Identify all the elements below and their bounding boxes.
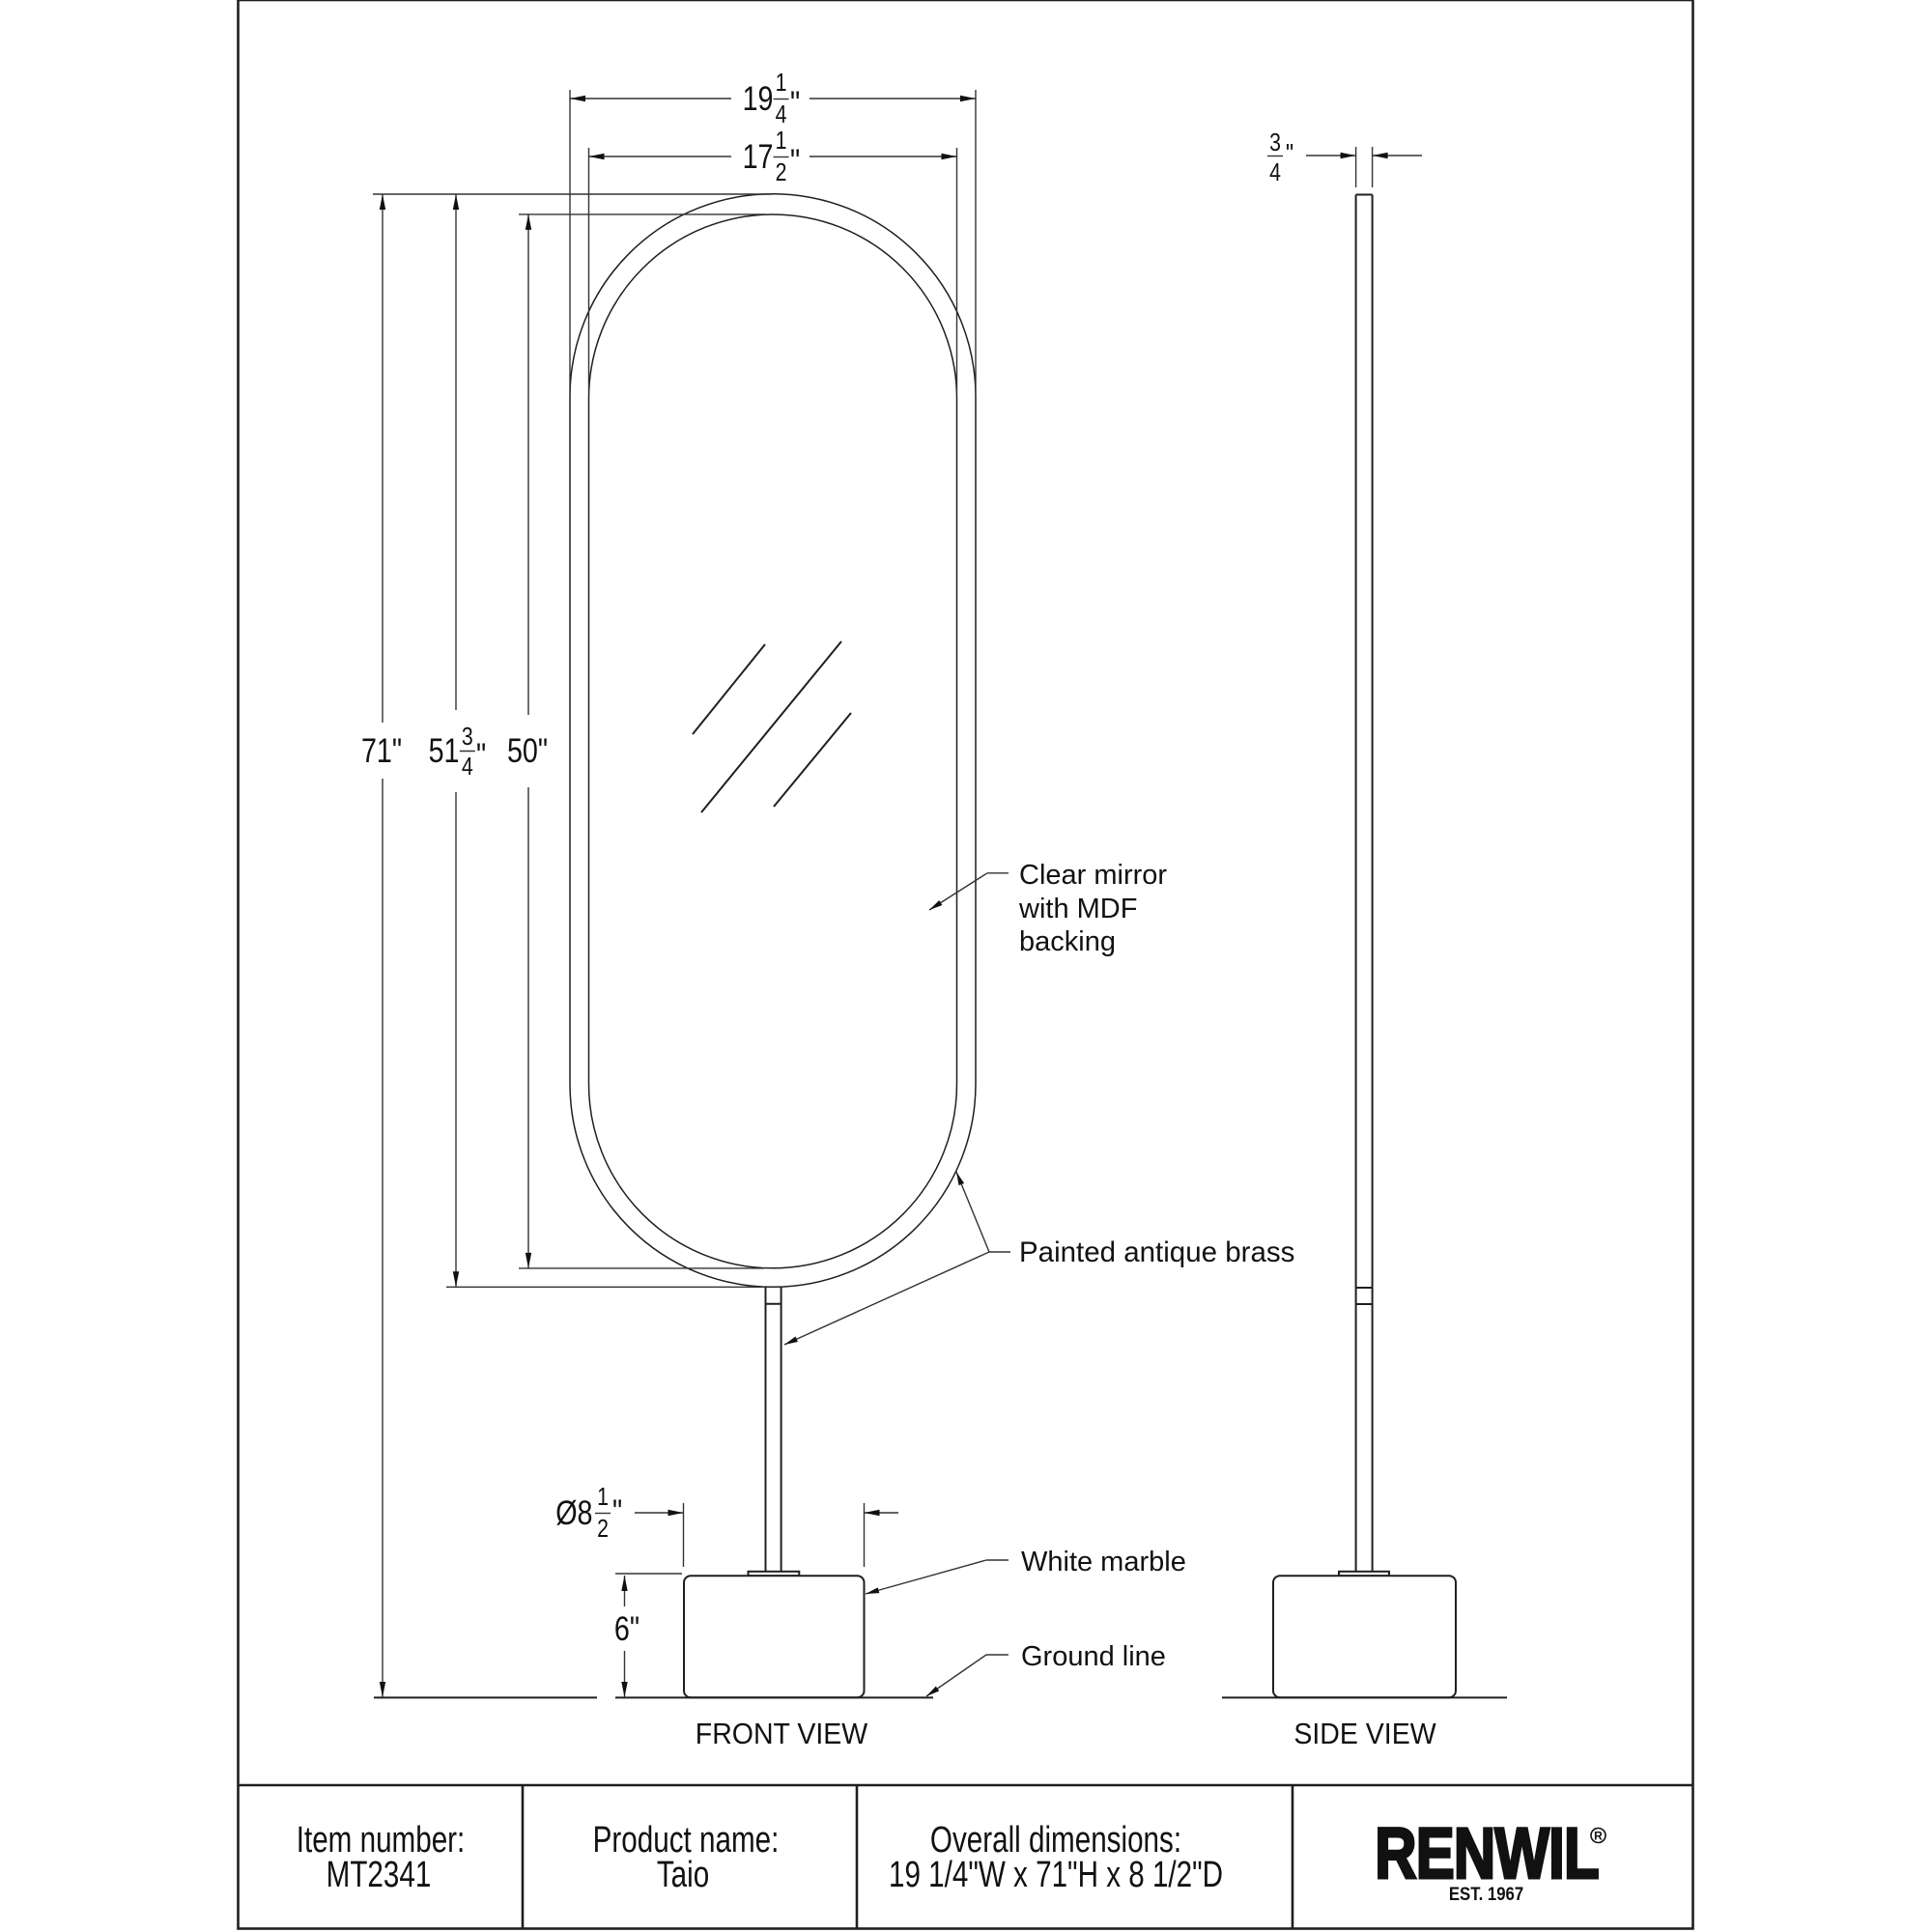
svg-text:4: 4: [462, 753, 473, 781]
svg-text:": ": [790, 142, 800, 180]
svg-text:FRONT VIEW: FRONT VIEW: [696, 1718, 867, 1750]
svg-text:": ": [612, 1492, 622, 1530]
svg-text:": ": [476, 736, 486, 774]
svg-text:Taio: Taio: [657, 1855, 709, 1895]
svg-text:Clear mirror: Clear mirror: [1019, 860, 1167, 891]
svg-text:1: 1: [776, 127, 787, 156]
svg-text:EST. 1967: EST. 1967: [1449, 1884, 1523, 1904]
svg-text:Painted antique brass: Painted antique brass: [1019, 1236, 1294, 1268]
svg-text:R: R: [1594, 1830, 1603, 1843]
svg-text:": ": [790, 84, 800, 122]
svg-text:71": 71": [361, 731, 402, 769]
svg-text:4: 4: [776, 100, 787, 129]
svg-text:Ø8: Ø8: [555, 1493, 592, 1531]
svg-text:RENWIL: RENWIL: [1375, 1814, 1599, 1893]
svg-text:19: 19: [743, 79, 774, 117]
svg-text:Ground line: Ground line: [1021, 1641, 1166, 1672]
svg-text:MT2341: MT2341: [327, 1855, 432, 1895]
svg-text:": ": [1286, 139, 1293, 169]
svg-text:SIDE VIEW: SIDE VIEW: [1293, 1718, 1435, 1750]
svg-text:2: 2: [776, 158, 787, 187]
svg-text:4: 4: [1269, 158, 1281, 187]
svg-text:6": 6": [614, 1609, 639, 1647]
svg-text:1: 1: [776, 69, 787, 98]
svg-text:White marble: White marble: [1021, 1547, 1186, 1577]
svg-text:17: 17: [743, 137, 774, 175]
svg-text:51: 51: [429, 731, 460, 769]
svg-text:50": 50": [507, 731, 548, 769]
svg-text:with MDF: with MDF: [1018, 894, 1137, 924]
svg-text:3: 3: [462, 723, 473, 752]
svg-text:19 1/4"W x 71"H x 8 1/2"D: 19 1/4"W x 71"H x 8 1/2"D: [889, 1855, 1223, 1895]
svg-text:backing: backing: [1019, 926, 1116, 957]
svg-text:3: 3: [1269, 128, 1281, 157]
svg-text:2: 2: [597, 1515, 609, 1544]
svg-text:1: 1: [597, 1483, 609, 1512]
